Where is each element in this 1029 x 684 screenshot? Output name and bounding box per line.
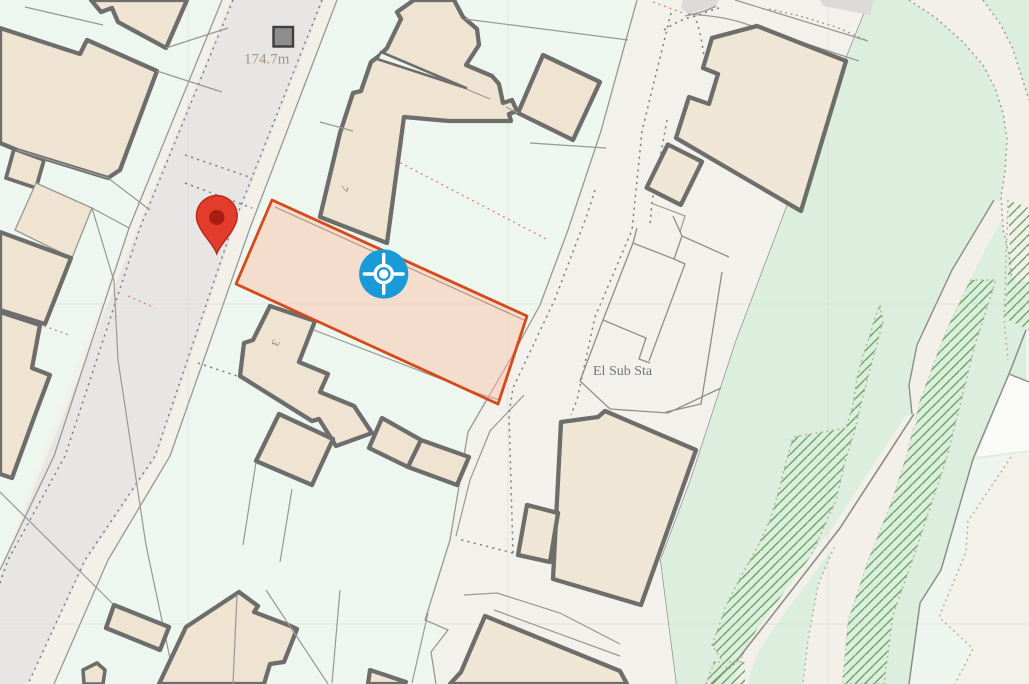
svg-text:El Sub Sta: El Sub Sta — [593, 364, 653, 379]
svg-text:174.7m: 174.7m — [244, 52, 290, 68]
